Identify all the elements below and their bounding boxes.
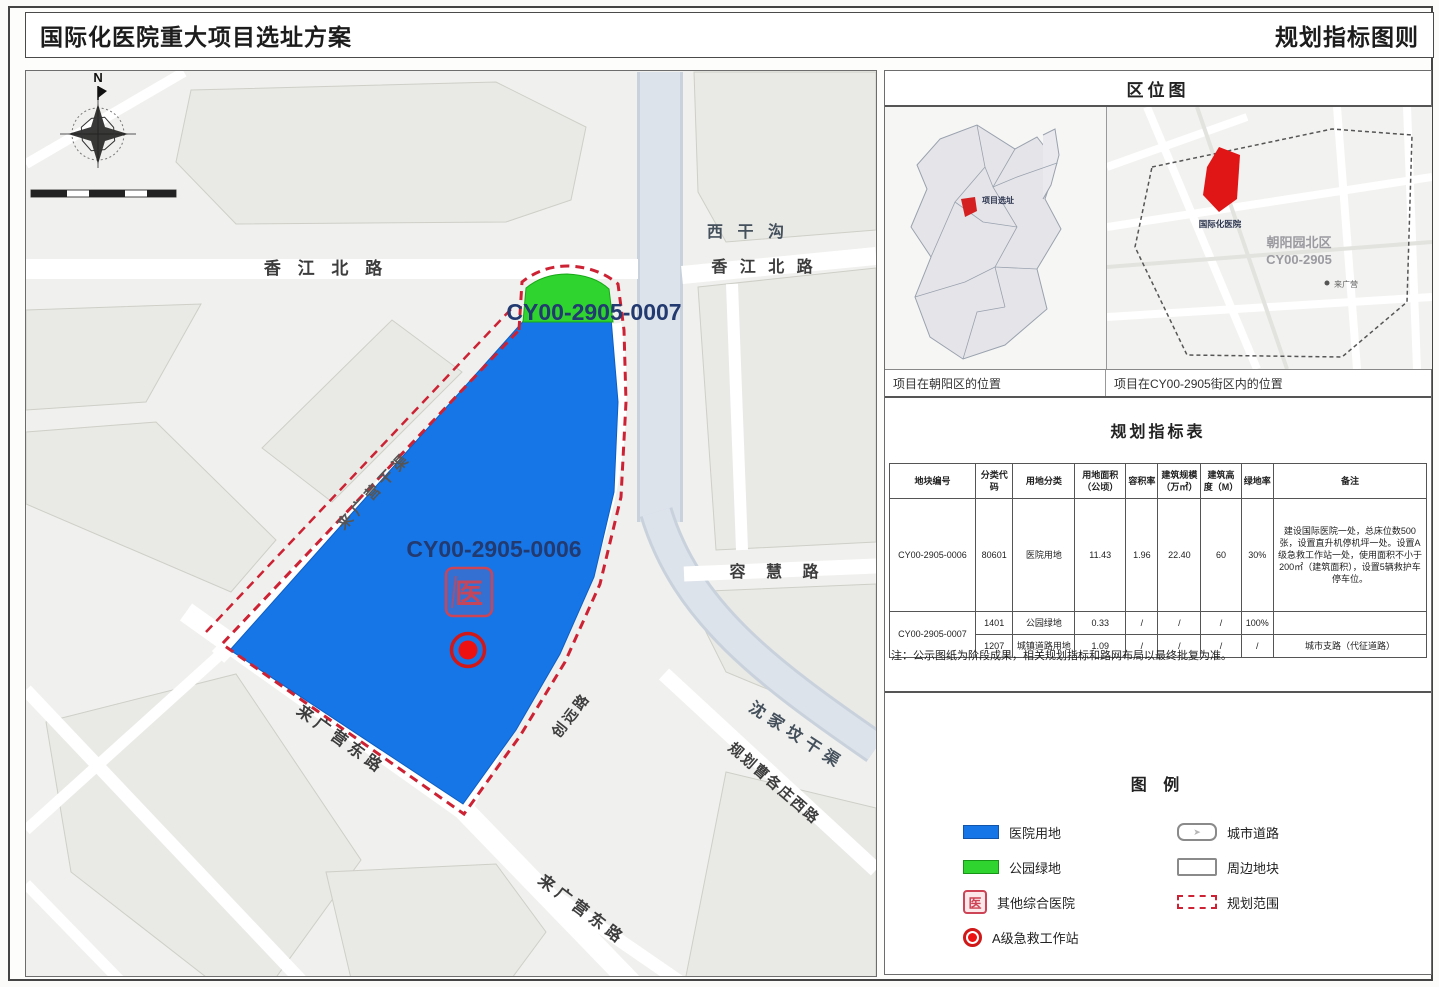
road-label-xiangjiang-right: 香 江 北 路 xyxy=(710,257,816,276)
caption-block: 项目在CY00-2905街区内的位置 xyxy=(1106,370,1431,396)
legend-label: 其他综合医院 xyxy=(997,893,1075,912)
cell-green: 30% xyxy=(1241,499,1273,612)
legend-label: 周边地块 xyxy=(1227,858,1279,877)
page-title: 国际化医院重大项目选址方案 xyxy=(40,18,352,52)
legend-label: 城市道路 xyxy=(1227,823,1279,842)
legend-item-hospital-land: 医院用地 xyxy=(963,821,1079,843)
col-header: 建筑高度（M） xyxy=(1201,464,1241,499)
header-bar: 国际化医院重大项目选址方案 规划指标图则 xyxy=(25,12,1434,58)
legend-item-city-road: ➤ 城市道路 xyxy=(1177,821,1279,843)
table-note: 注：公示图纸为阶段成果，相关规划指标和路网布局以最终批复为准。 xyxy=(891,649,1425,664)
other-hospital-stamp-icon: 医 xyxy=(963,890,987,914)
hospital-parcel-code: CY00-2905-0006 xyxy=(406,536,581,562)
indicator-table-title: 规划指标表 xyxy=(885,401,1431,459)
legend-item-park-green: 公园绿地 xyxy=(963,856,1079,878)
table-row: CY00-2905-0006 80601 医院用地 11.43 1.96 22.… xyxy=(890,499,1427,612)
legend-column-left: 医院用地 公园绿地 医 其他综合医院 A级急救工作站 xyxy=(963,821,1079,948)
scale-bar xyxy=(31,190,176,197)
legend-column-right: ➤ 城市道路 周边地块 规划范围 xyxy=(1177,821,1279,913)
col-header: 用地面积（公顷） xyxy=(1075,464,1126,499)
indicator-table: 地块编号 分类代码 用地分类 用地面积（公顷） 容积率 建筑规模（万㎡） 建筑高… xyxy=(889,463,1427,658)
cell-scale: / xyxy=(1158,612,1201,635)
station-dot xyxy=(1325,281,1330,286)
block-minimap[interactable]: 国际化医院 朝阳园北区 CY00-2905 来广营 xyxy=(1107,107,1432,369)
col-header: 用地分类 xyxy=(1013,464,1075,499)
col-header: 分类代码 xyxy=(975,464,1013,499)
other-hospital-stamp-icon: 医 xyxy=(446,568,492,616)
canal-label-xigangou: 西 干 沟 xyxy=(707,222,789,241)
city-road-icon: ➤ xyxy=(1177,823,1217,841)
legend-label: 公园绿地 xyxy=(1009,858,1061,877)
cell-green: 100% xyxy=(1241,612,1273,635)
planning-scope-icon xyxy=(1177,895,1217,909)
col-header: 备注 xyxy=(1273,464,1426,499)
cell-plot-code: CY00-2905-0006 xyxy=(890,499,976,612)
cell-class-code: 1401 xyxy=(975,612,1013,635)
minimap-captions: 项目在朝阳区的位置 项目在CY00-2905街区内的位置 xyxy=(885,369,1431,398)
legend-item-planning-scope: 规划范围 xyxy=(1177,891,1279,913)
legend-item-emergency-station: A级急救工作站 xyxy=(963,926,1079,948)
cell-land-use: 公园绿地 xyxy=(1013,612,1075,635)
cell-height: 60 xyxy=(1201,499,1241,612)
legend-label: 规划范围 xyxy=(1227,893,1279,912)
legend-section: 图 例 医院用地 公园绿地 医 其他综合医院 A级急救工作站 ➤ 城市道路 xyxy=(885,691,1431,976)
cell-far: / xyxy=(1126,612,1158,635)
sheet-title: 规划指标图则 xyxy=(1275,18,1419,52)
park-parcel-code: CY00-2905-0007 xyxy=(506,299,681,325)
legend-item-surrounding-plots: 周边地块 xyxy=(1177,856,1279,878)
location-map-title: 区位图 xyxy=(885,71,1431,107)
col-header: 容积率 xyxy=(1126,464,1158,499)
cell-remark xyxy=(1273,612,1426,635)
cell-class-code: 80601 xyxy=(975,499,1013,612)
cell-height: / xyxy=(1201,612,1241,635)
zone-code: CY00-2905 xyxy=(1266,252,1332,267)
road-label-ronghui: 容 慧 路 xyxy=(729,562,827,581)
cell-area: 0.33 xyxy=(1075,612,1126,635)
table-row: CY00-2905-0007 1401 公园绿地 0.33 / / / 100% xyxy=(890,612,1427,635)
emergency-station-icon xyxy=(963,928,982,947)
cell-far: 1.96 xyxy=(1126,499,1158,612)
station-label: 来广营 xyxy=(1334,279,1358,289)
cell-scale: 22.40 xyxy=(1158,499,1201,612)
site-map-panel[interactable]: 医 CY00-2905-0007 CY00-2905-0006 香 江 北 路 … xyxy=(25,70,877,977)
cell-land-use: 医院用地 xyxy=(1013,499,1075,612)
block-minimap-svg: 国际化医院 朝阳园北区 CY00-2905 来广营 xyxy=(1107,107,1432,369)
table-header-row: 地块编号 分类代码 用地分类 用地面积（公顷） 容积率 建筑规模（万㎡） 建筑高… xyxy=(890,464,1427,499)
legend-label: 医院用地 xyxy=(1009,823,1061,842)
road-label-xiangjiang-left: 香 江 北 路 xyxy=(264,258,388,278)
col-header: 建筑规模（万㎡） xyxy=(1158,464,1201,499)
legend-item-other-hospital: 医 其他综合医院 xyxy=(963,891,1079,913)
legend-label: A级急救工作站 xyxy=(992,928,1079,947)
legend-title: 图 例 xyxy=(885,771,1431,795)
surrounding-plot-icon xyxy=(1177,858,1217,876)
hospital-land-swatch-icon xyxy=(963,825,999,839)
block-site-label: 国际化医院 xyxy=(1199,219,1242,229)
zone-name: 朝阳园北区 xyxy=(1266,235,1331,250)
district-marker-label: 项目选址 xyxy=(982,195,1014,205)
indicator-panel: 区位图 项目选址 xyxy=(884,70,1432,975)
district-minimap-svg: 项目选址 xyxy=(885,107,1106,369)
cell-remark: 建设国际医院一处，总床位数500张，设置直升机停机坪一处。设置A级急救工作站一处… xyxy=(1273,499,1426,612)
site-map: 医 CY00-2905-0007 CY00-2905-0006 香 江 北 路 … xyxy=(26,71,876,976)
location-minimaps: 项目选址 国际化医院 xyxy=(885,107,1431,369)
svg-text:医: 医 xyxy=(455,578,483,609)
svg-text:N: N xyxy=(93,71,102,85)
col-header: 绿地率 xyxy=(1241,464,1273,499)
col-header: 地块编号 xyxy=(890,464,976,499)
caption-district: 项目在朝阳区的位置 xyxy=(885,370,1106,396)
cell-area: 11.43 xyxy=(1075,499,1126,612)
district-minimap[interactable]: 项目选址 xyxy=(885,107,1107,369)
park-green-swatch-icon xyxy=(963,860,999,874)
